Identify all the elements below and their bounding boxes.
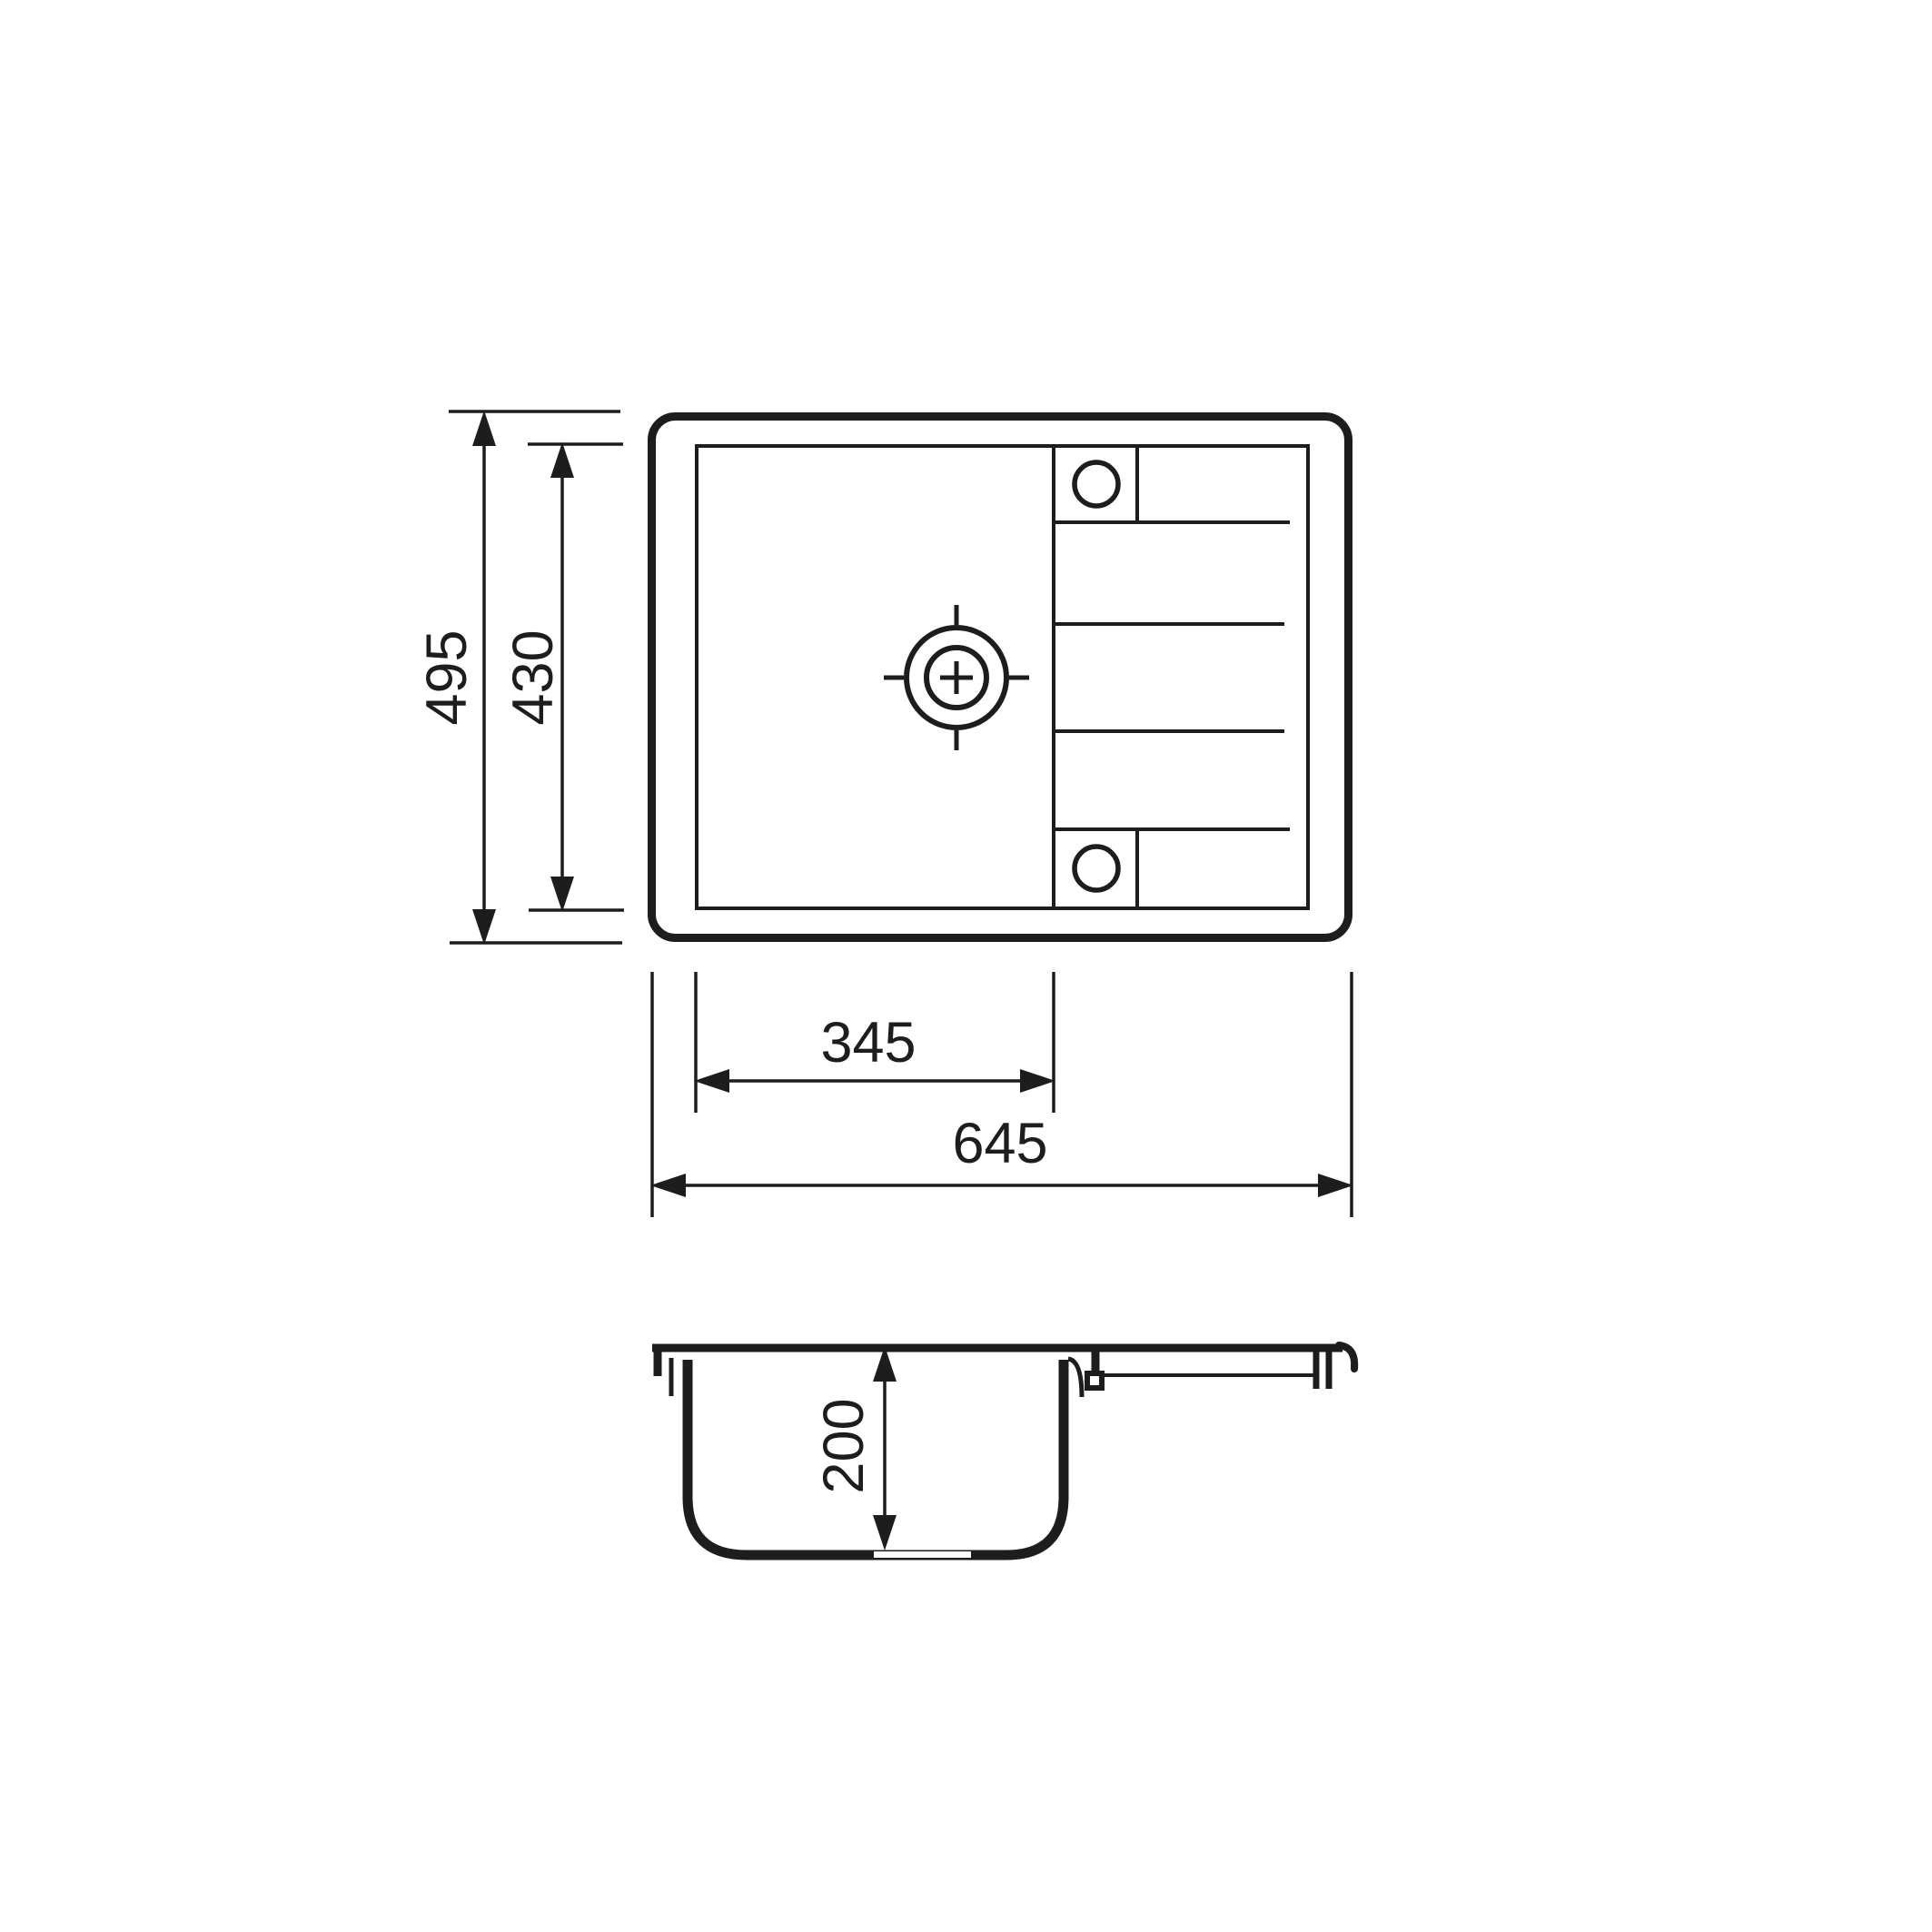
- section-rim-end-hook: [1339, 1345, 1354, 1369]
- sink-inner-edge: [697, 446, 1308, 908]
- dimension-label-430: 430: [501, 629, 565, 725]
- dimension-label-200: 200: [812, 1398, 876, 1493]
- arrowhead-down: [472, 909, 496, 945]
- section-clip-square: [1087, 1373, 1102, 1388]
- section-bowl-profile: [688, 1360, 1064, 1555]
- section-right-clip-stub: [1068, 1359, 1082, 1397]
- section-view: [652, 1345, 1354, 1558]
- sink-outer-rim: [652, 417, 1349, 938]
- sink-technical-drawing: 495 430 345 645: [0, 0, 1932, 1932]
- top-view: [652, 417, 1349, 938]
- arrowhead-down: [550, 877, 574, 912]
- drain-center-mark: [884, 605, 1029, 750]
- section-drain-slot: [874, 1551, 971, 1558]
- tap-hole-bottom-circle: [1075, 847, 1118, 890]
- arrowhead-left: [650, 1174, 686, 1197]
- dimension-overall-width: 645: [650, 972, 1353, 1217]
- dimension-bowl-depth: 200: [812, 1346, 897, 1551]
- tap-hole-top-circle: [1075, 462, 1118, 506]
- arrowhead-up: [472, 411, 496, 446]
- arrowhead-right: [1020, 1069, 1055, 1093]
- dimension-bowl-width: 345: [694, 972, 1055, 1113]
- dimension-inner-height: 430: [501, 442, 624, 912]
- dimension-label-645: 645: [952, 1112, 1047, 1175]
- arrowhead-left: [694, 1069, 729, 1093]
- arrowhead-right: [1318, 1174, 1353, 1197]
- arrowhead-down: [873, 1515, 897, 1551]
- arrowhead-up: [550, 442, 574, 478]
- dimension-label-495: 495: [415, 629, 479, 725]
- dimension-label-345: 345: [820, 1011, 916, 1075]
